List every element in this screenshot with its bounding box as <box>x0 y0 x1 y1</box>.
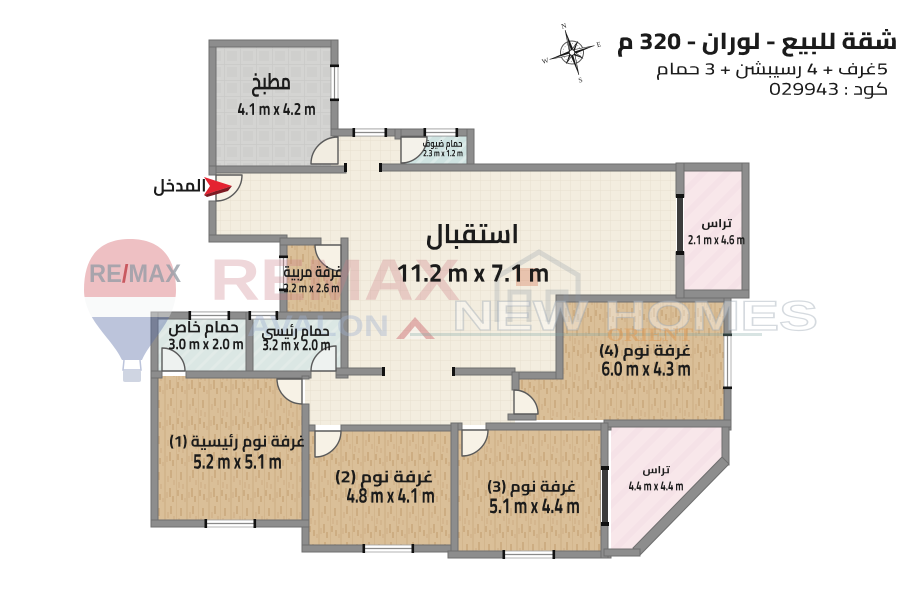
svg-text:ORIENT: ORIENT <box>607 325 693 346</box>
svg-text:REMAX: REMAX <box>210 248 460 313</box>
svg-text:RE/MAX: RE/MAX <box>89 260 181 288</box>
